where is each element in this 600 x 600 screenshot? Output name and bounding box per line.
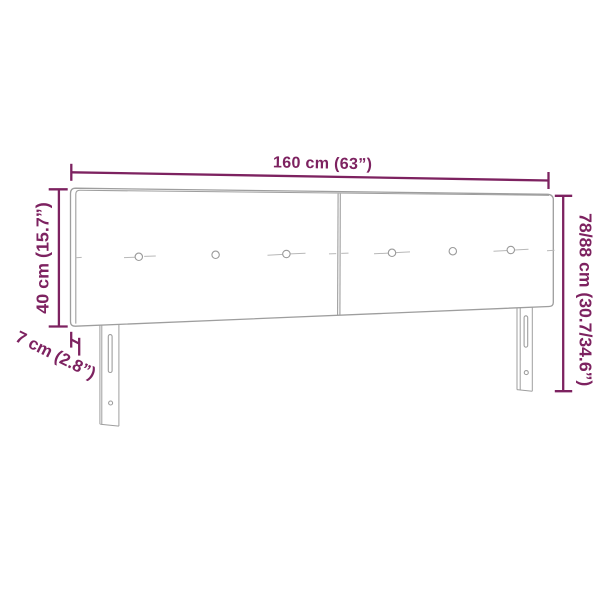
svg-text:78/88 cm (30.7/34.6”): 78/88 cm (30.7/34.6”) xyxy=(576,213,596,386)
svg-text:40 cm (15.7”): 40 cm (15.7”) xyxy=(33,202,53,313)
svg-text:160 cm (63”): 160 cm (63”) xyxy=(273,153,373,173)
